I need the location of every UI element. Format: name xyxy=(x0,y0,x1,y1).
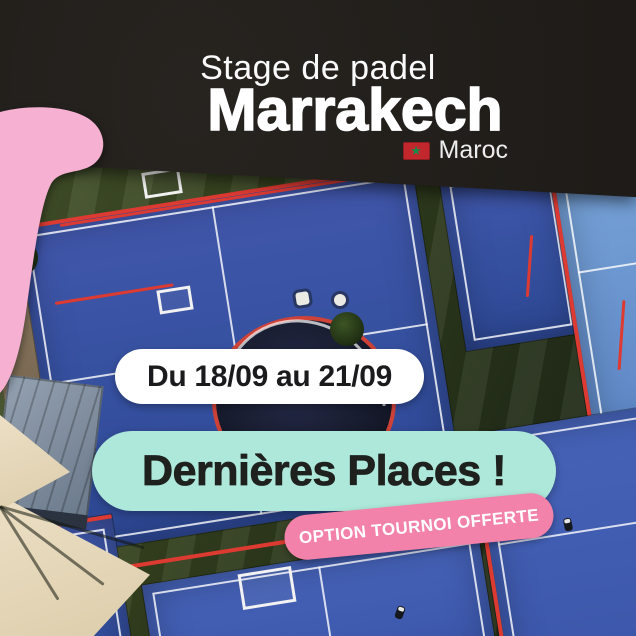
terrace-table xyxy=(295,291,310,306)
pink-swoosh-decoration xyxy=(0,0,160,400)
date-pill-label: Du 18/09 au 21/09 xyxy=(147,360,392,394)
date-pill: Du 18/09 au 21/09 xyxy=(115,349,424,404)
tree xyxy=(330,312,364,346)
terrace-table xyxy=(334,294,346,306)
court-line xyxy=(318,566,337,636)
court-line xyxy=(578,254,636,273)
last-places-label: Dernières Places ! xyxy=(142,447,506,496)
promo-poster: Stage de padel Marrakech ★ Maroc Du 18/0… xyxy=(0,0,636,636)
